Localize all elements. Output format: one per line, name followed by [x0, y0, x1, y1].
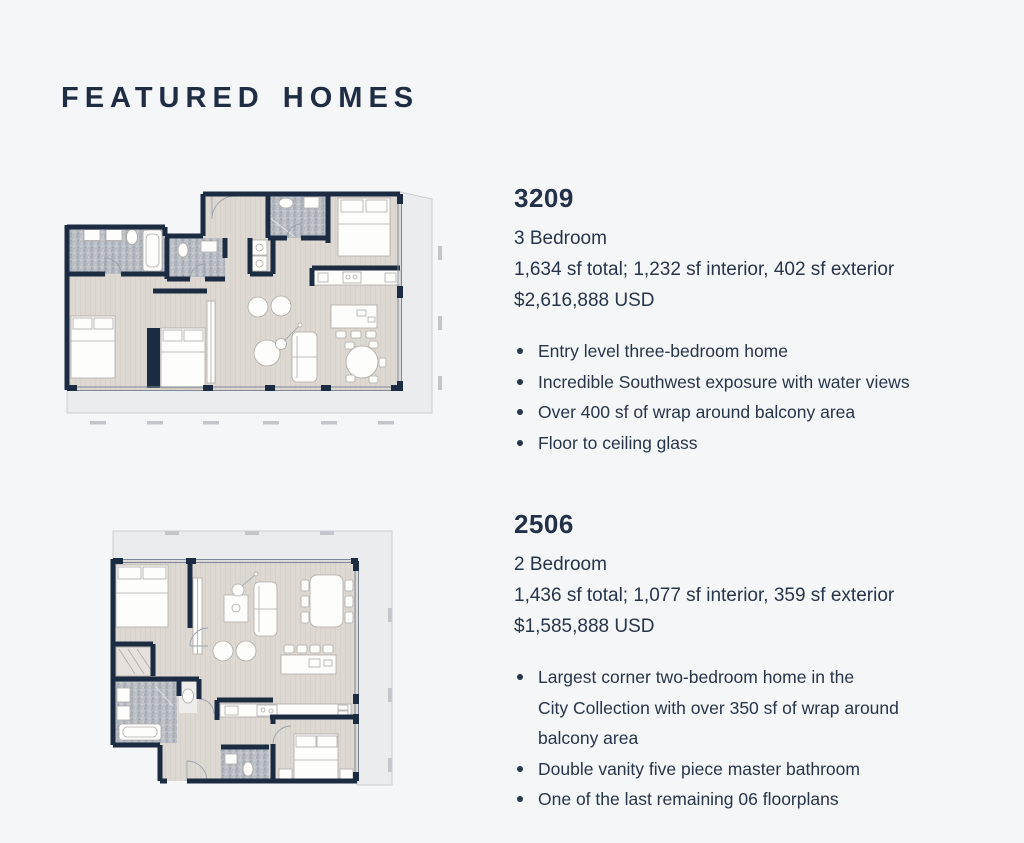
feature-item: Double vanity five piece master bathroom: [514, 754, 988, 785]
unit-2506-details: 2506 2 Bedroom 1,436 sf total; 1,077 sf …: [514, 510, 988, 815]
unit-feature-list: Entry level three-bedroom home Incredibl…: [514, 336, 988, 458]
unit-summary: 3 Bedroom 1,634 sf total; 1,232 sf inter…: [514, 223, 988, 316]
unit-bedrooms: 2 Bedroom: [514, 549, 988, 580]
unit-number: 2506: [514, 510, 988, 538]
floorplan-2506-image: [95, 518, 407, 818]
floorplan-3209-image: [55, 186, 455, 431]
feature-item: Entry level three-bedroom home: [514, 336, 988, 367]
unit-price: $1,585,888 USD: [514, 611, 988, 642]
unit-summary: 2 Bedroom 1,436 sf total; 1,077 sf inter…: [514, 549, 988, 642]
unit-3209-details: 3209 3 Bedroom 1,634 sf total; 1,232 sf …: [514, 184, 988, 458]
unit-bedrooms: 3 Bedroom: [514, 223, 988, 254]
unit-price: $2,616,888 USD: [514, 285, 988, 316]
unit-feature-list: Largest corner two-bedroom home in the C…: [514, 662, 988, 815]
feature-item: Floor to ceiling glass: [514, 428, 988, 459]
feature-item: Incredible Southwest exposure with water…: [514, 367, 988, 398]
feature-item: Over 400 sf of wrap around balcony area: [514, 397, 988, 428]
unit-number: 3209: [514, 184, 988, 212]
closet: [116, 647, 153, 676]
page-title: FEATURED HOMES: [61, 82, 419, 115]
feature-item: One of the last remaining 06 floorplans: [514, 784, 988, 815]
wardrobe-wall: [147, 328, 160, 388]
unit-area: 1,634 sf total; 1,232 sf interior, 402 s…: [514, 254, 988, 285]
feature-item: Largest corner two-bedroom home in the C…: [514, 662, 988, 754]
unit-area: 1,436 sf total; 1,077 sf interior, 359 s…: [514, 580, 988, 611]
